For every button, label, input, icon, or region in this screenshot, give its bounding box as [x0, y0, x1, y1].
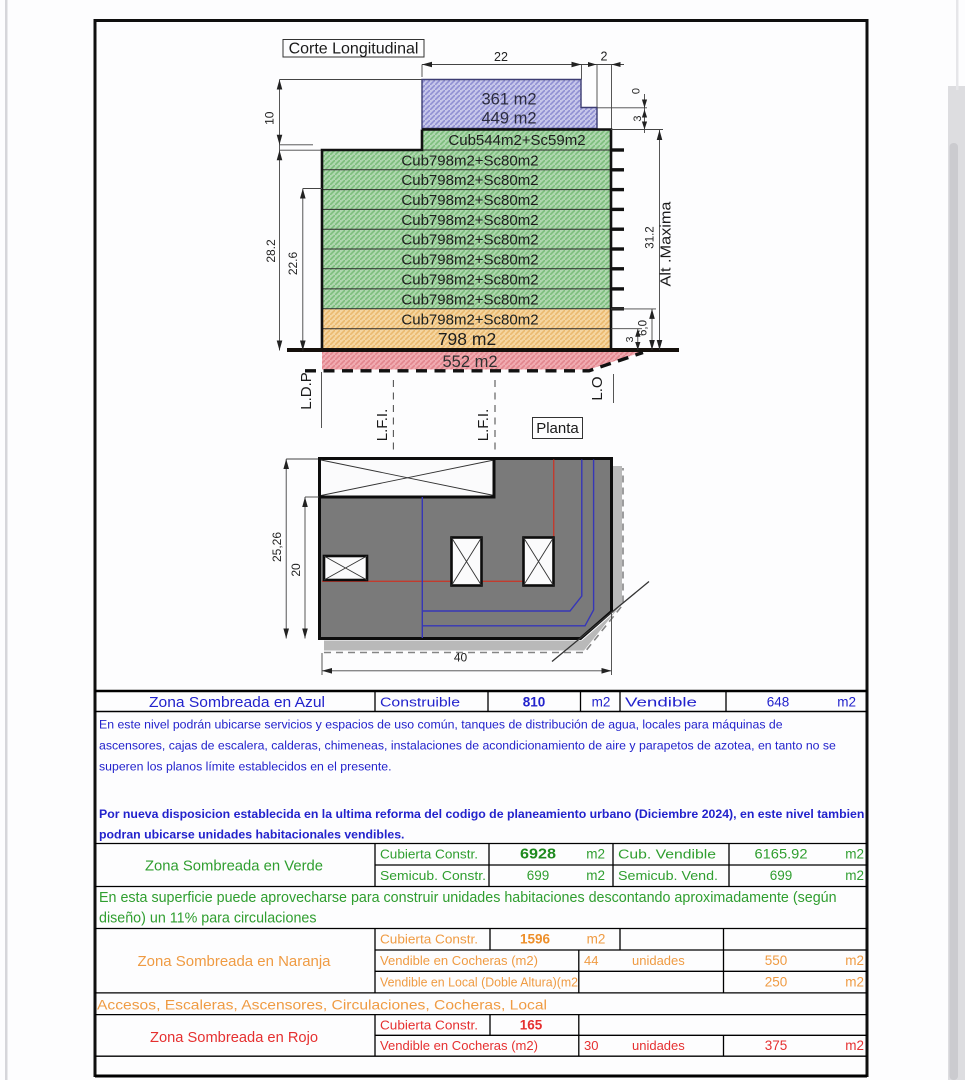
svg-text:810: 810 — [523, 695, 546, 710]
svg-text:25,26: 25,26 — [270, 532, 284, 562]
svg-text:1596: 1596 — [520, 932, 551, 947]
svg-text:Vendible en Cocheras (m2): Vendible en Cocheras (m2) — [380, 953, 538, 968]
svg-text:En este nivel podrán ubicarse: En este nivel podrán ubicarse servicios … — [99, 718, 783, 732]
svg-text:En esta superficie puede aprov: En esta superficie puede aprovecharse pa… — [99, 890, 837, 906]
svg-text:250: 250 — [765, 975, 788, 990]
svg-text:Cubierta Constr.: Cubierta Constr. — [380, 932, 478, 947]
svg-text:375: 375 — [765, 1038, 788, 1053]
svg-text:m2: m2 — [845, 953, 864, 968]
svg-text:22.6: 22.6 — [286, 251, 300, 275]
svg-text:2: 2 — [601, 50, 608, 64]
svg-text:22: 22 — [494, 50, 508, 64]
svg-text:44: 44 — [584, 953, 598, 968]
svg-text:L.F.I.: L.F.I. — [475, 409, 492, 442]
svg-text:Cub. Vendible: Cub. Vendible — [618, 847, 716, 862]
svg-text:m2: m2 — [845, 975, 864, 990]
svg-text:Construible: Construible — [380, 695, 460, 710]
svg-text:Cub798m2+Sc80m2: Cub798m2+Sc80m2 — [401, 192, 538, 209]
svg-text:ascensores, cajas de escalera,: ascensores, cajas de escalera, calderas,… — [99, 739, 836, 753]
svg-text:3: 3 — [632, 115, 644, 121]
svg-text:Cub798m2+Sc80m2: Cub798m2+Sc80m2 — [401, 172, 538, 189]
svg-text:Cubierta Constr.: Cubierta Constr. — [380, 1017, 478, 1032]
svg-text:648: 648 — [767, 695, 790, 710]
svg-text:6928: 6928 — [520, 847, 556, 863]
svg-text:Cub798m2+Sc80m2: Cub798m2+Sc80m2 — [401, 252, 538, 269]
svg-text:Vendible en Cocheras (m2): Vendible en Cocheras (m2) — [380, 1038, 538, 1053]
svg-text:m2: m2 — [837, 695, 856, 710]
svg-text:Cub798m2+Sc80m2: Cub798m2+Sc80m2 — [401, 311, 538, 328]
svg-text:Cub544m2+Sc59m2: Cub544m2+Sc59m2 — [448, 132, 585, 149]
svg-text:Cub798m2+Sc80m2: Cub798m2+Sc80m2 — [401, 212, 538, 229]
svg-text:Zona Sombreada en Verde: Zona Sombreada en Verde — [145, 858, 323, 875]
svg-text:podran ubicarse unidades habit: podran ubicarse unidades habitacionales … — [99, 828, 404, 842]
svg-text:m2: m2 — [845, 847, 864, 862]
svg-text:10: 10 — [263, 111, 277, 125]
svg-text:unidades: unidades — [632, 953, 685, 968]
svg-text:20: 20 — [289, 563, 303, 577]
svg-text:552 m2: 552 m2 — [442, 353, 497, 371]
svg-text:Corte Longitudinal: Corte Longitudinal — [289, 41, 419, 58]
svg-text:699: 699 — [770, 868, 793, 883]
svg-text:diseño) un 11% para circulacio: diseño) un 11% para circulaciones — [99, 911, 317, 927]
svg-text:Planta: Planta — [536, 420, 579, 437]
svg-text:Alt .Maxima: Alt .Maxima — [658, 201, 675, 287]
svg-text:550: 550 — [765, 953, 788, 968]
svg-text:31.2: 31.2 — [645, 226, 657, 248]
svg-text:Semicub. Constr.: Semicub. Constr. — [380, 868, 486, 883]
svg-text:30: 30 — [584, 1038, 598, 1053]
svg-text:m2: m2 — [587, 932, 606, 947]
svg-text:0: 0 — [631, 88, 643, 94]
svg-text:Por nueva disposicion establec: Por nueva disposicion establecida en la … — [99, 807, 864, 821]
svg-text:Zona Sombreada en Azul: Zona Sombreada en Azul — [149, 694, 325, 711]
svg-text:Zona Sombreada en Naranja: Zona Sombreada en Naranja — [138, 953, 332, 970]
svg-text:Cub798m2+Sc80m2: Cub798m2+Sc80m2 — [401, 291, 538, 308]
svg-text:40: 40 — [454, 651, 468, 665]
svg-text:3: 3 — [624, 336, 636, 342]
svg-text:Accesos, Escaleras, Ascensores: Accesos, Escaleras, Ascensores, Circulac… — [97, 997, 547, 1013]
svg-text:Cub798m2+Sc80m2: Cub798m2+Sc80m2 — [401, 232, 538, 249]
svg-text:L.D.P: L.D.P — [298, 372, 315, 410]
svg-text:165: 165 — [520, 1017, 543, 1032]
svg-text:unidades: unidades — [632, 1038, 685, 1053]
svg-text:m2: m2 — [845, 868, 864, 883]
svg-text:699: 699 — [527, 868, 550, 883]
svg-text:Zona Sombreada en Rojo: Zona Sombreada en Rojo — [150, 1029, 318, 1046]
svg-text:Cub798m2+Sc80m2: Cub798m2+Sc80m2 — [401, 152, 538, 169]
svg-text:superen los planos límite esta: superen los planos límite establecidos e… — [99, 760, 392, 774]
svg-text:361 m2: 361 m2 — [481, 91, 536, 109]
svg-text:Vendible en Local (Doble Altur: Vendible en Local (Doble Altura)(m2 — [380, 975, 578, 990]
svg-text:449 m2: 449 m2 — [481, 110, 536, 128]
svg-text:Cub798m2+Sc80m2: Cub798m2+Sc80m2 — [401, 271, 538, 288]
svg-text:798 m2: 798 m2 — [438, 329, 496, 349]
svg-text:Vendible: Vendible — [625, 695, 697, 710]
svg-text:28.2: 28.2 — [264, 239, 278, 263]
svg-text:L.F.I.: L.F.I. — [374, 409, 391, 442]
svg-text:m2: m2 — [592, 695, 611, 710]
svg-text:m2: m2 — [586, 868, 605, 883]
svg-text:L.O: L.O — [589, 376, 606, 400]
svg-text:Semicub. Vend.: Semicub. Vend. — [618, 868, 718, 883]
svg-text:6165.92: 6165.92 — [755, 847, 808, 862]
svg-text:Cubierta Constr.: Cubierta Constr. — [380, 847, 478, 862]
svg-text:m2: m2 — [845, 1038, 864, 1053]
svg-text:m2: m2 — [586, 847, 605, 862]
